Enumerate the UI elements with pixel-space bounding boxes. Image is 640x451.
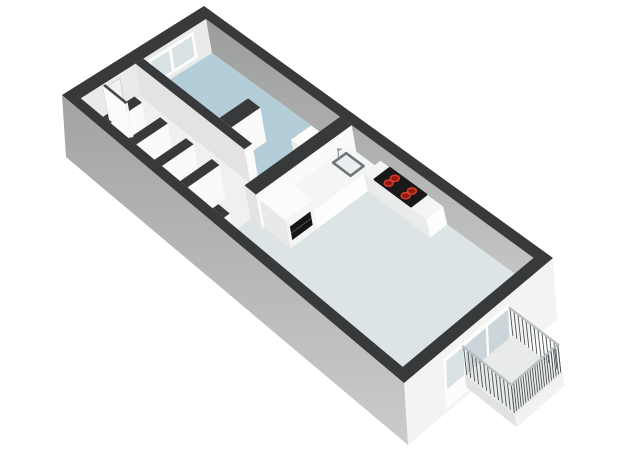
floorplan-3d-view	[0, 0, 640, 451]
scene-root	[62, 6, 565, 445]
floorplan-canvas	[0, 0, 640, 451]
